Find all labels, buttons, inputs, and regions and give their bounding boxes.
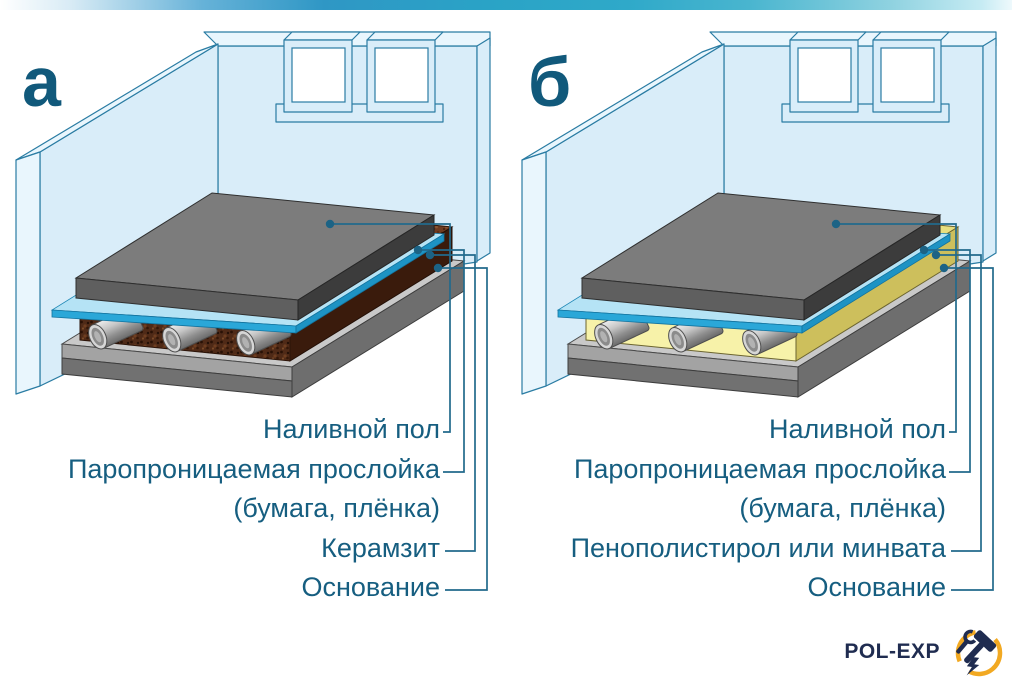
panel-b: б Наливной пол Паропроницаемая прослойка… bbox=[506, 0, 1012, 682]
brand-logo-text: POL-EXP bbox=[844, 640, 940, 664]
infographic-root: а Наливной пол Паропроницаемая прослойка… bbox=[0, 0, 1012, 682]
label-vapor-layer: Паропроницаемая прослойка bbox=[574, 454, 947, 484]
layer-labels: Наливной пол Паропроницаемая прослойка (… bbox=[68, 414, 441, 602]
label-vapor-layer-note: (бумага, плёнка) bbox=[233, 493, 440, 523]
label-insulation: Керамзит bbox=[321, 533, 440, 563]
corner-pilaster bbox=[477, 38, 490, 261]
panel-letter: а bbox=[22, 43, 62, 121]
panel-a: а Наливной пол Паропроницаемая прослойка… bbox=[0, 0, 506, 682]
window-1-reveal bbox=[284, 32, 360, 40]
label-base: Основание bbox=[808, 572, 947, 602]
pol-exp-logo-icon bbox=[952, 624, 1006, 680]
window-2-reveal bbox=[367, 32, 443, 40]
panel-a-diagram: а Наливной пол Паропроницаемая прослойка… bbox=[0, 0, 506, 682]
brand-logo: POL-EXP bbox=[770, 622, 1006, 682]
layer-labels: Наливной пол Паропроницаемая прослойка (… bbox=[571, 414, 947, 602]
panel-b-diagram: б Наливной пол Паропроницаемая прослойка… bbox=[506, 0, 1012, 682]
window-2-glass bbox=[881, 48, 934, 102]
panel-letter: б bbox=[528, 43, 571, 121]
label-insulation: Пенополистирол или минвата bbox=[571, 533, 947, 563]
left-wall-side-edge bbox=[522, 152, 546, 394]
corner-pilaster bbox=[983, 38, 996, 261]
label-base: Основание bbox=[302, 572, 441, 602]
window-2-reveal bbox=[873, 32, 949, 40]
window-1-reveal bbox=[790, 32, 866, 40]
left-wall-side-edge bbox=[16, 152, 40, 394]
window-1-glass bbox=[292, 48, 345, 102]
window-2-glass bbox=[375, 48, 428, 102]
label-vapor-layer-note: (бумага, плёнка) bbox=[739, 493, 946, 523]
label-screed: Наливной пол bbox=[769, 414, 946, 444]
label-vapor-layer: Паропроницаемая прослойка bbox=[68, 454, 441, 484]
label-screed: Наливной пол bbox=[263, 414, 440, 444]
window-1-glass bbox=[798, 48, 851, 102]
